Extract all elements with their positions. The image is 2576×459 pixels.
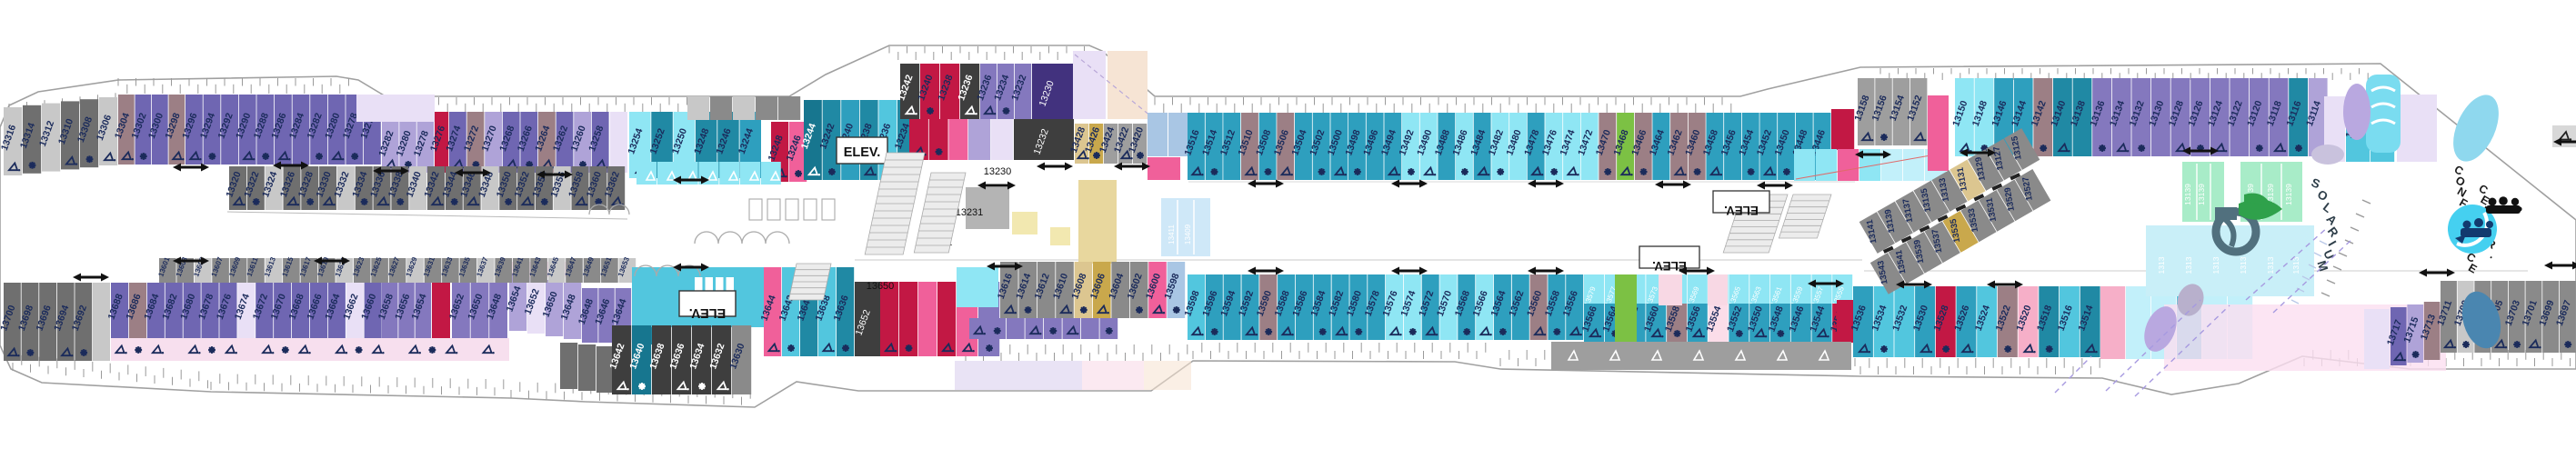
svg-text:13230: 13230 [984, 166, 1012, 177]
svg-text:13139: 13139 [2183, 184, 2192, 205]
svg-text:13409: 13409 [1184, 224, 1192, 244]
svg-text:1313: 1313 [2184, 256, 2193, 274]
svg-text:ELEV.: ELEV. [1724, 204, 1759, 217]
svg-text:13411: 13411 [1168, 225, 1176, 244]
svg-text:1313: 1313 [2157, 256, 2166, 274]
svg-text:1313: 1313 [2211, 256, 2220, 274]
svg-text:13139: 13139 [2284, 184, 2293, 205]
svg-text:13650: 13650 [867, 281, 895, 292]
svg-text:13231: 13231 [956, 207, 984, 218]
svg-text:ELEV.: ELEV. [689, 305, 727, 320]
svg-text:1313: 1313 [2239, 256, 2248, 274]
svg-text:ELEV.: ELEV. [844, 145, 881, 160]
svg-text:13139: 13139 [2197, 184, 2206, 205]
svg-text:1313: 1313 [2266, 256, 2275, 274]
